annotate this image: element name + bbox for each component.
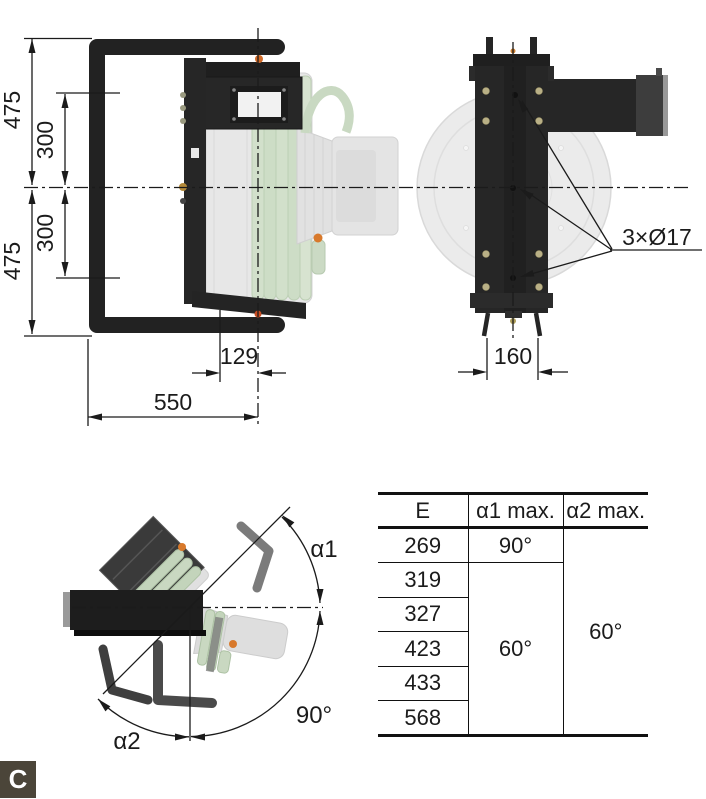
hose-fitting-orange bbox=[314, 234, 323, 243]
header-alpha1-max: α1 max. bbox=[468, 494, 563, 528]
dim-160: 160 bbox=[494, 343, 532, 369]
wall-arm bbox=[548, 79, 640, 132]
alpha2-label: α2 bbox=[113, 728, 140, 755]
e-value: 327 bbox=[378, 597, 468, 631]
junction-box-window bbox=[238, 92, 281, 117]
table-row: 269 90° 60° bbox=[378, 528, 648, 563]
header-e: E bbox=[378, 494, 468, 528]
e-value: 319 bbox=[378, 563, 468, 597]
angle-table: E α1 max. α2 max. 269 90° 60° 319 60° 32… bbox=[378, 492, 648, 737]
dim-550: 550 bbox=[154, 389, 192, 415]
section-badge: C bbox=[0, 761, 36, 798]
table-header-row: E α1 max. α2 max. bbox=[378, 494, 648, 528]
side-view bbox=[417, 37, 668, 336]
alpha1-label: α1 bbox=[310, 536, 337, 563]
dim-475-bottom: 475 bbox=[0, 242, 25, 280]
rotation-view bbox=[63, 516, 290, 703]
rotation-arm bbox=[70, 590, 203, 630]
e-value: 423 bbox=[378, 632, 468, 666]
reel-lower-ghost bbox=[191, 606, 290, 683]
header-alpha2-max: α2 max. bbox=[563, 494, 648, 528]
e-value: 568 bbox=[378, 700, 468, 735]
mount-plate bbox=[184, 58, 206, 304]
dim-300-bottom: 300 bbox=[32, 214, 58, 252]
alpha1-value: 90° bbox=[468, 528, 563, 563]
angle90-label: 90° bbox=[296, 702, 332, 729]
alpha1-value: 60° bbox=[468, 563, 563, 736]
e-value: 433 bbox=[378, 666, 468, 700]
dim-300-top: 300 bbox=[32, 121, 58, 159]
alpha2-value: 60° bbox=[563, 528, 648, 736]
dim-129: 129 bbox=[220, 343, 258, 369]
datasheet-page: 475 300 300 475 129 550 160 3×Ø17 α1 90°… bbox=[0, 0, 706, 799]
holes-label: 3×Ø17 bbox=[622, 224, 692, 250]
pivot-bolt-top bbox=[255, 55, 263, 63]
dim-475-top: 475 bbox=[0, 91, 25, 129]
e-value: 269 bbox=[378, 528, 468, 563]
